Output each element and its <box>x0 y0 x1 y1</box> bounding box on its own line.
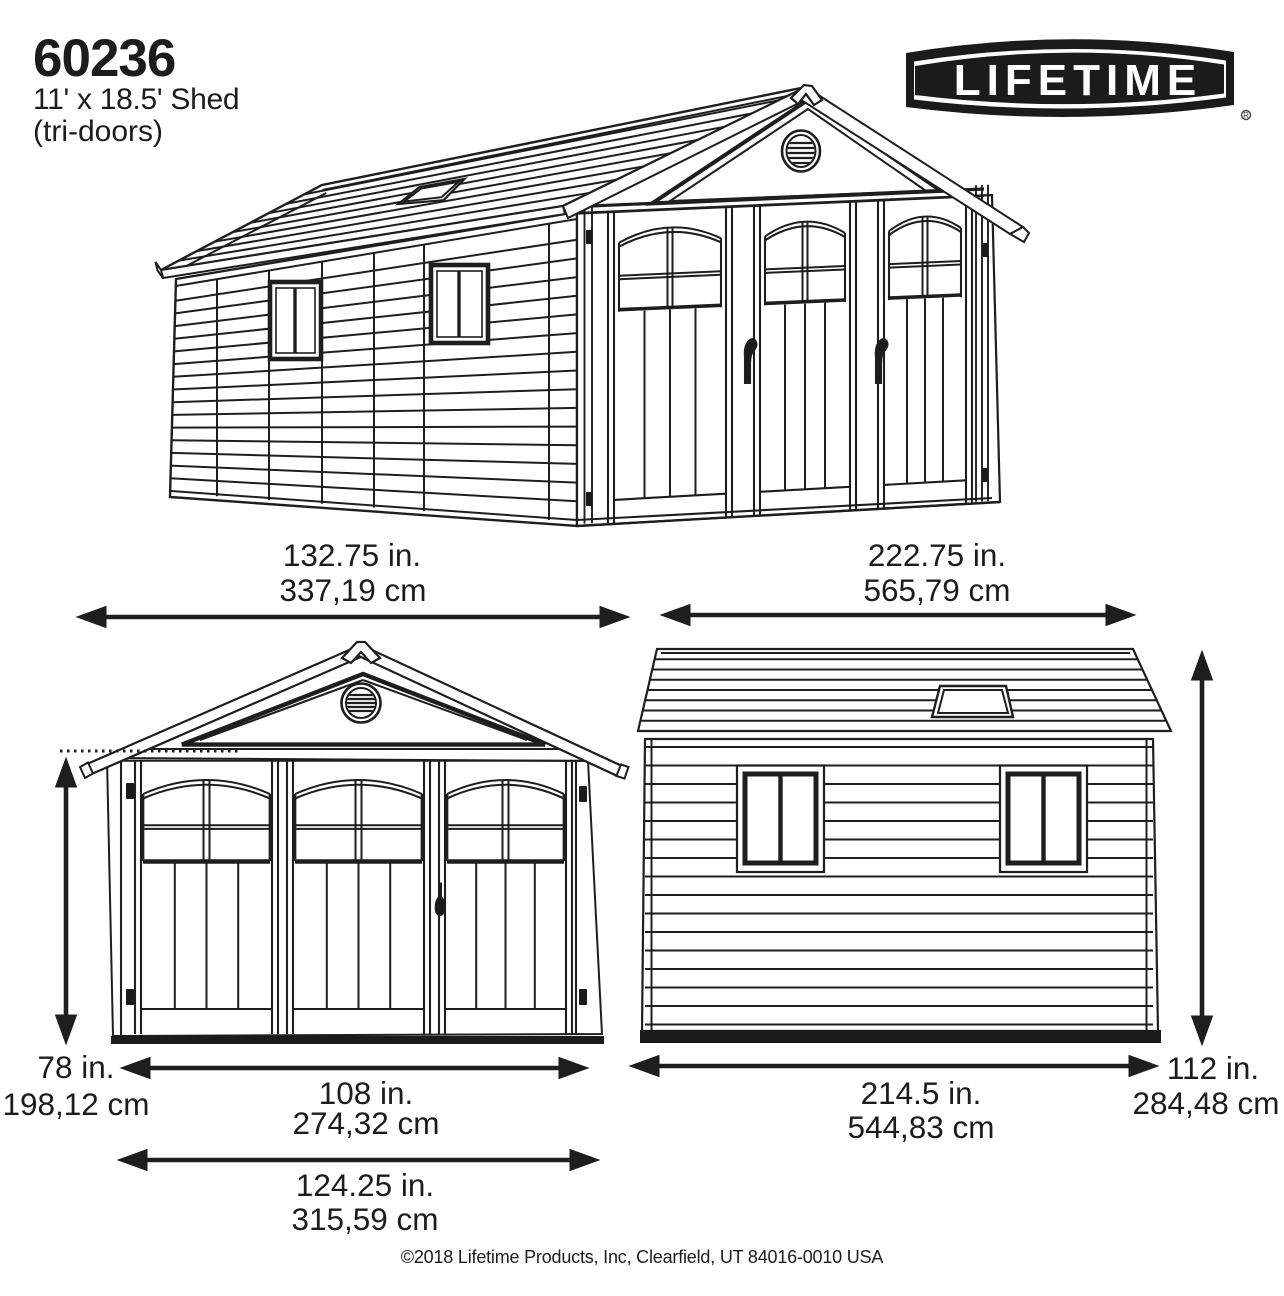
svg-text:78 in.: 78 in. <box>37 1049 114 1085</box>
svg-text:222.75 in.: 222.75 in. <box>868 537 1006 573</box>
svg-text:284,48 cm: 284,48 cm <box>1132 1085 1279 1121</box>
svg-text:LIFETIME: LIFETIME <box>954 56 1202 105</box>
svg-text:124.25 in.: 124.25 in. <box>296 1167 434 1203</box>
svg-text:274,32 cm: 274,32 cm <box>292 1105 439 1141</box>
svg-text:R: R <box>1243 111 1249 120</box>
svg-text:214.5 in.: 214.5 in. <box>861 1075 982 1111</box>
svg-text:112 in.: 112 in. <box>1167 1050 1259 1086</box>
svg-text:(tri-doors): (tri-doors) <box>33 115 163 148</box>
svg-text:198,12 cm: 198,12 cm <box>2 1086 149 1122</box>
svg-text:60236: 60236 <box>33 29 175 88</box>
svg-text:11' x 18.5' Shed: 11' x 18.5' Shed <box>33 83 239 116</box>
svg-text:337,19 cm: 337,19 cm <box>279 572 426 608</box>
svg-text:315,59 cm: 315,59 cm <box>291 1201 438 1237</box>
svg-text:544,83 cm: 544,83 cm <box>847 1109 994 1145</box>
svg-text:565,79 cm: 565,79 cm <box>863 572 1010 608</box>
svg-text:©2018 Lifetime Products, Inc,: ©2018 Lifetime Products, Inc, Clearfield… <box>401 1247 884 1267</box>
svg-text:132.75 in.: 132.75 in. <box>283 537 421 573</box>
